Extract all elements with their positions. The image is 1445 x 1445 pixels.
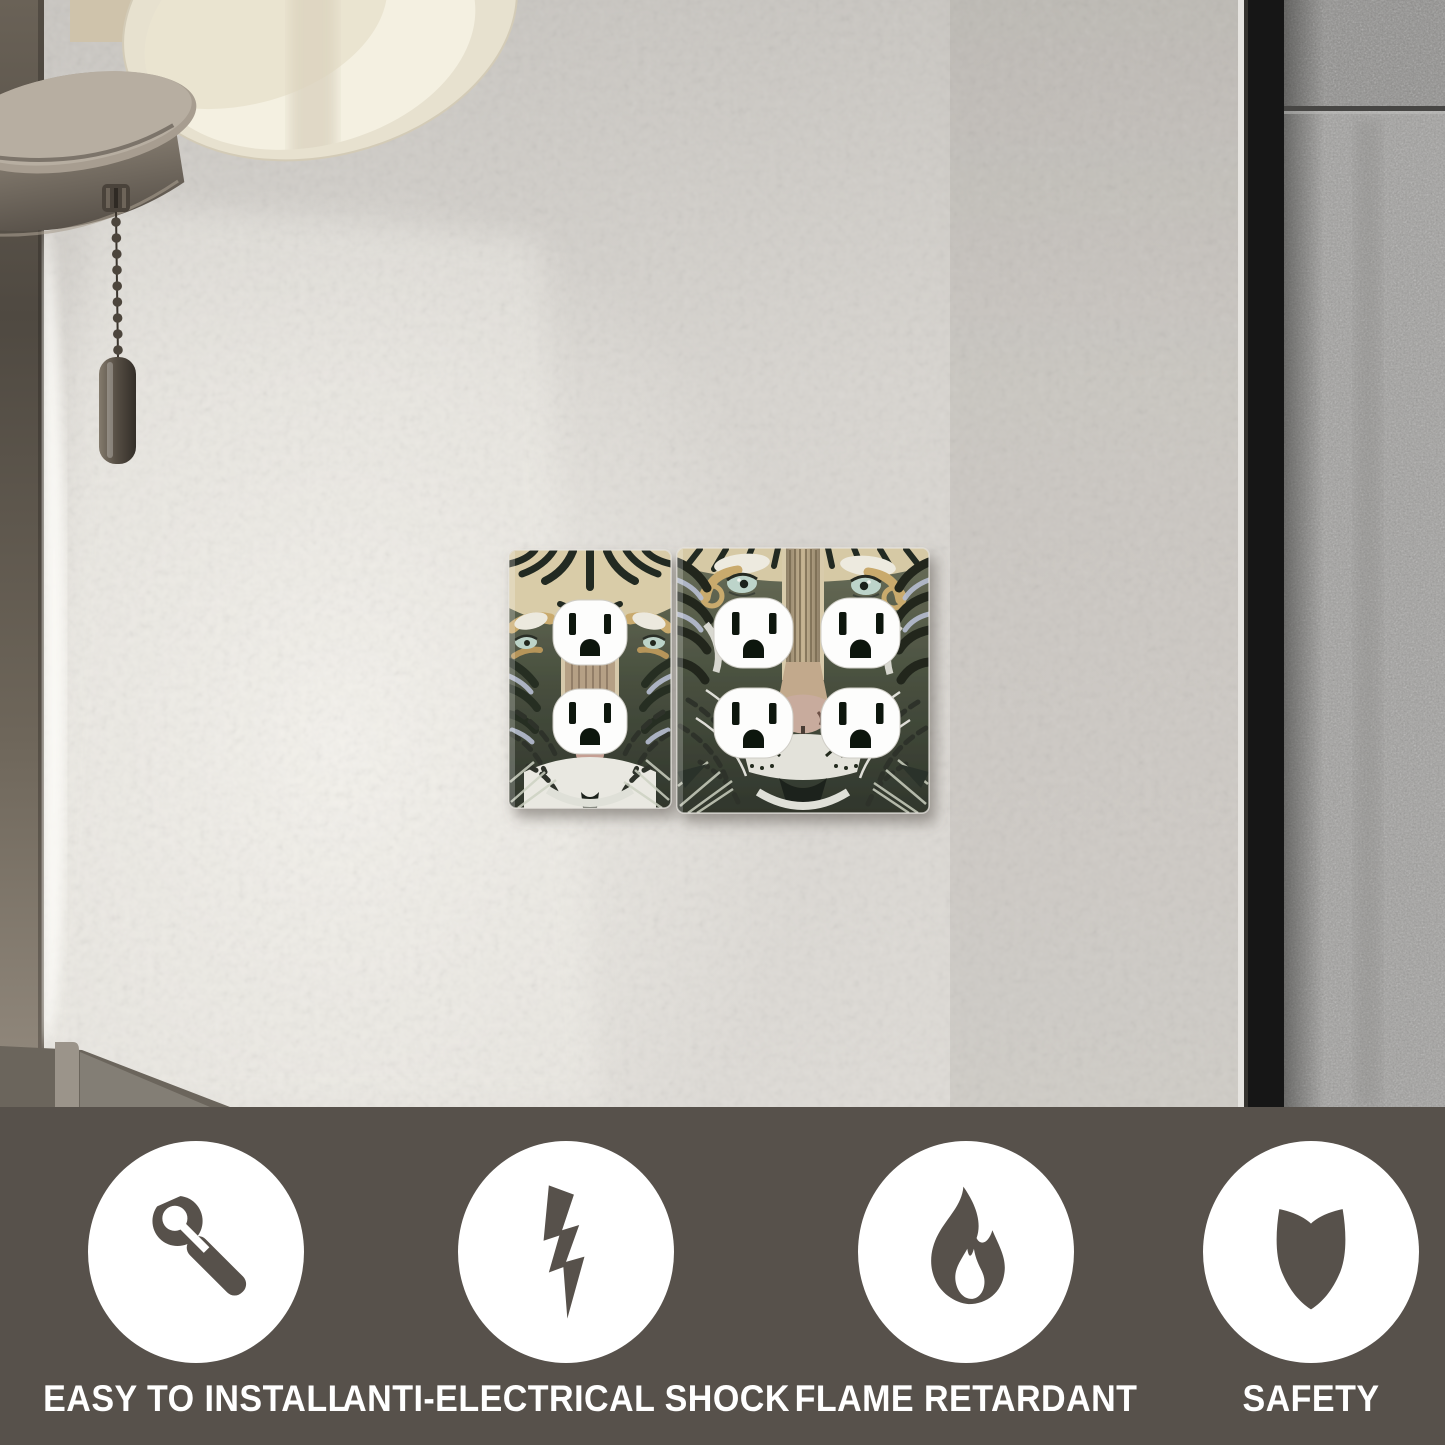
outlet-receptacle	[553, 600, 627, 665]
headboard-fabric	[1284, 0, 1445, 1107]
outlet-receptacle	[714, 688, 793, 758]
tiger-eye	[643, 635, 665, 649]
feature-label: EASY TO INSTALL	[43, 1378, 349, 1420]
wrench-icon-badge	[88, 1141, 304, 1363]
feature-label: FLAME RETARDANT	[795, 1378, 1138, 1420]
outlet-receptacle	[714, 598, 793, 668]
flame-icon-badge	[858, 1141, 1074, 1363]
scene-photo	[0, 0, 1445, 1107]
feature-safety: SAFETY	[1101, 1107, 1445, 1445]
left-wall-plate	[509, 550, 671, 812]
shield-icon-badge	[1203, 1141, 1419, 1363]
tiger-artwork-left	[509, 550, 671, 812]
lightning-icon-badge	[458, 1141, 674, 1363]
outlet-receptacle	[553, 689, 627, 754]
feature-label: SAFETY	[1242, 1378, 1379, 1420]
feature-label: ANTI-ELECTRICAL SHOCK	[342, 1378, 790, 1420]
wrench-icon	[130, 1181, 262, 1323]
feature-anti-electrical-shock: ANTI-ELECTRICAL SHOCK	[356, 1107, 776, 1445]
outlet-plates	[509, 548, 929, 813]
feature-banner: EASY TO INSTALL ANTI-ELECTRICAL SHOCK FL…	[0, 1107, 1445, 1445]
product-image: EASY TO INSTALL ANTI-ELECTRICAL SHOCK FL…	[0, 0, 1445, 1445]
headboard-seam	[1284, 106, 1445, 111]
flame-icon	[900, 1181, 1032, 1323]
right-wall-plate	[677, 548, 929, 813]
pull-chain-weight	[99, 357, 136, 464]
outlet-receptacle	[821, 598, 900, 668]
lightning-bolt-icon	[500, 1181, 632, 1323]
wall-edge-highlight	[1238, 0, 1244, 1107]
outlet-receptacle	[821, 688, 900, 758]
headboard-frame	[1244, 0, 1284, 1107]
shield-icon	[1245, 1181, 1377, 1323]
headboard	[1238, 0, 1445, 1107]
tiger-eye	[515, 635, 537, 649]
